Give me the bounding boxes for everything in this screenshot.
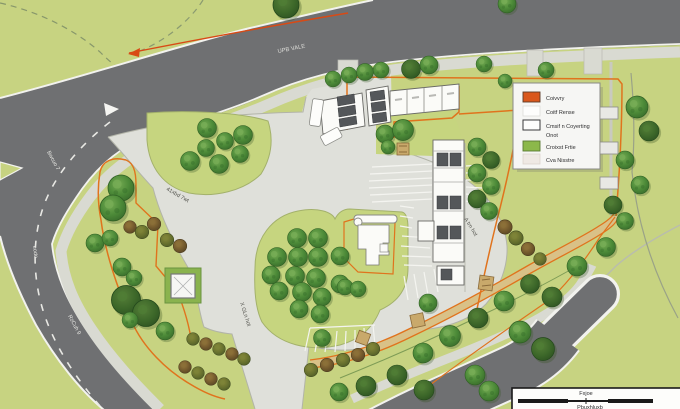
svg-text:Onot: Onot [546,133,558,139]
svg-text:Cva Nisstre: Cva Nisstre [546,158,574,164]
svg-text:Cmsif n Coyerting: Cmsif n Coyerting [546,124,590,130]
svg-text:Coitf Rense: Coitf Rense [546,110,575,116]
svg-text:Fxjoe: Fxjoe [579,391,592,397]
svg-text:Croixst Frtie: Croixst Frtie [546,145,576,151]
svg-text:Pbuxhluxb: Pbuxhluxb [577,405,603,409]
svg-text:Coivvry: Coivvry [546,96,565,102]
